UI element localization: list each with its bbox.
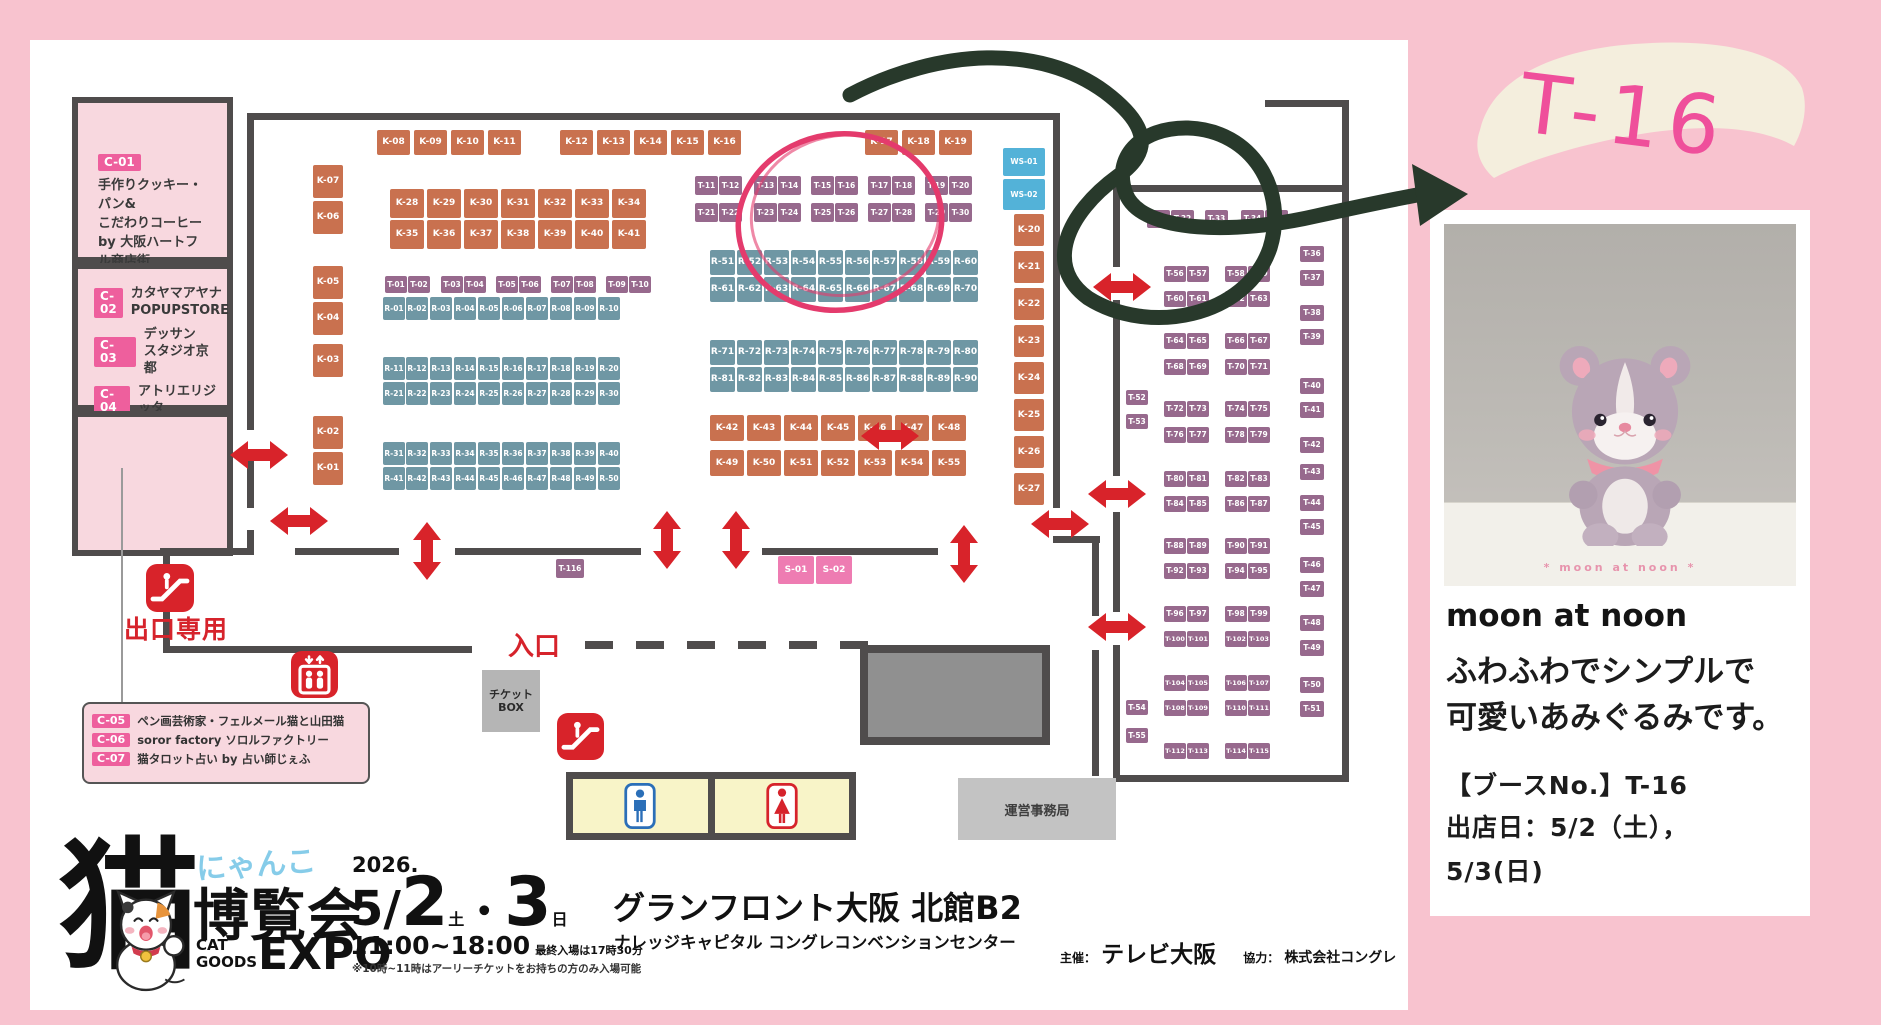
booth-t-28: T-28 [892, 203, 915, 222]
organizer-name: テレビ大阪 [1101, 942, 1216, 968]
booth-t-108: T-108 [1164, 700, 1186, 716]
booth-t-92: T-92 [1164, 563, 1186, 579]
booth-t-25: T-25 [811, 203, 834, 222]
booth-t-66: T-66 [1225, 333, 1247, 349]
booth-k-13: K-13 [597, 130, 630, 155]
room-c01-line1: 手作りクッキー・パン& [98, 177, 211, 215]
booth-r-80: R-80 [953, 340, 978, 365]
booth-t-35: T-35 [1265, 210, 1288, 228]
booth-k-29: K-29 [427, 189, 461, 218]
featured-booth-sidebar: T-16 [1408, 0, 1881, 1025]
booth-t-69: T-69 [1187, 359, 1209, 375]
wall-segment [160, 548, 250, 555]
booth-r-27: R-27 [526, 382, 548, 405]
booth-t-103: T-103 [1248, 631, 1270, 647]
booth-t-77: T-77 [1187, 427, 1209, 443]
booth-r-08: R-08 [550, 297, 572, 320]
booth-t-94: T-94 [1225, 563, 1247, 579]
wall-segment [1113, 300, 1120, 476]
booth-r-54: R-54 [791, 250, 816, 275]
date-day2-sub: 日 [552, 910, 568, 929]
booth-t-56: T-56 [1164, 266, 1186, 282]
booth-r-76: R-76 [845, 340, 870, 365]
booth-t-106: T-106 [1225, 675, 1247, 691]
booth-r-59: R-59 [926, 250, 951, 275]
booth-r-02: R-02 [406, 297, 428, 320]
booth-t-43: T-43 [1300, 464, 1324, 480]
room-c01-line2: こだわりコーヒー [98, 215, 211, 234]
booth-k-25: K-25 [1014, 399, 1044, 431]
booth-t-04: T-04 [464, 276, 486, 293]
elevator-icon [291, 651, 338, 698]
flow-arrow-horizontal [268, 504, 330, 538]
flow-arrow-vertical [650, 509, 684, 571]
booth-r-45: R-45 [478, 467, 500, 490]
booth-r-63: R-63 [764, 277, 789, 302]
booth-r-74: R-74 [791, 340, 816, 365]
wall-segment [1113, 512, 1120, 612]
wall-segment [455, 548, 641, 555]
booth-r-69: R-69 [926, 277, 951, 302]
legend-box: C-05 ペン画芸術家・フェルメール猫と山田猫 C-06 soror facto… [82, 702, 370, 784]
booth-k-14: K-14 [634, 130, 667, 155]
room-c02-c04: C-02 カタヤマアヤナ POPUPSTORE C-03 デッサン スタジオ京都… [72, 263, 233, 411]
booth-t-57: T-57 [1187, 266, 1209, 282]
event-footer: 猫 にゃんこ 博覧会 CAT GOODS EXPO 2026. 5/2 [30, 835, 1408, 1010]
booth-r-87: R-87 [872, 367, 897, 392]
legend-c06-text: soror factory ソロルファクトリー [137, 732, 329, 748]
booth-k-42: K-42 [710, 415, 744, 441]
booth-r-81: R-81 [710, 367, 735, 392]
venue-sub: ナレッジキャピタル コングレコンベンションセンター [614, 929, 1016, 953]
booth-k-32: K-32 [538, 189, 572, 218]
booth-r-83: R-83 [764, 367, 789, 392]
booth-r-43: R-43 [430, 467, 452, 490]
photo-caption: * moon at noon * [1444, 561, 1796, 574]
booth-r-09: R-09 [574, 297, 596, 320]
booth-r-64: R-64 [791, 277, 816, 302]
room-row-c03: C-03 デッサン スタジオ京都 [94, 327, 219, 378]
booth-t-116: T-116 [556, 559, 584, 578]
room-c03-line2: スタジオ京都 [144, 344, 219, 378]
booth-t-75: T-75 [1248, 401, 1270, 417]
booth-t-78: T-78 [1225, 427, 1247, 443]
booth-photo: * moon at noon * [1444, 224, 1796, 586]
booth-t-30: T-30 [949, 203, 972, 222]
booth-t-07: T-07 [551, 276, 573, 293]
booth-k-28: K-28 [390, 189, 424, 218]
booth-k-06: K-06 [313, 201, 343, 234]
room-c02-line1: カタヤマアヤナ [131, 286, 229, 303]
womens-toilet-icon [766, 783, 798, 829]
booth-ws-01: WS-01 [1003, 148, 1045, 176]
booth-r-35: R-35 [478, 442, 500, 465]
booth-t-39: T-39 [1300, 329, 1324, 345]
booth-t-99: T-99 [1248, 606, 1270, 622]
booth-r-49: R-49 [574, 467, 596, 490]
booth-t-45: T-45 [1300, 519, 1324, 535]
booth-title: moon at noon [1446, 598, 1687, 634]
wall-segment [1092, 536, 1099, 616]
booth-k-17: K-17 [865, 130, 898, 155]
booth-t-74: T-74 [1225, 401, 1247, 417]
booth-r-34: R-34 [454, 442, 476, 465]
ticket-box: チケット BOX [482, 670, 540, 732]
organizer-row: 主催： テレビ大阪 協力： 株式会社コングレ [1060, 935, 1396, 969]
booth-tag: T-16 [1462, 30, 1822, 200]
flow-arrow-horizontal [1029, 507, 1091, 541]
booth-t-31: T-31 [1147, 210, 1170, 228]
booth-t-37: T-37 [1300, 270, 1324, 286]
booth-t-01: T-01 [385, 276, 407, 293]
ticket-box-line1: チケット [489, 688, 533, 701]
booth-r-26: R-26 [502, 382, 524, 405]
booth-badge-c06: C-06 [92, 733, 130, 747]
booth-r-62: R-62 [737, 277, 762, 302]
flyer-canvas: C-01 手作りクッキー・パン& こだわりコーヒー by 大阪ハートフル商店街 … [0, 0, 1881, 1025]
booth-t-32: T-32 [1171, 210, 1194, 228]
booth-r-25: R-25 [478, 382, 500, 405]
booth-t-40: T-40 [1300, 378, 1324, 394]
booth-k-51: K-51 [784, 450, 818, 476]
booth-r-48: R-48 [550, 467, 572, 490]
booth-t-112: T-112 [1164, 743, 1186, 759]
wall-segment [1113, 645, 1120, 775]
booth-r-11: R-11 [383, 357, 405, 380]
booth-r-75: R-75 [818, 340, 843, 365]
booth-t-64: T-64 [1164, 333, 1186, 349]
booth-t-59: T-59 [1248, 266, 1270, 282]
entrance-label: 入口 [508, 626, 560, 663]
booth-k-10: K-10 [451, 130, 484, 155]
booth-t-90: T-90 [1225, 538, 1247, 554]
booth-r-39: R-39 [574, 442, 596, 465]
booth-r-13: R-13 [430, 357, 452, 380]
room-c03-line1: デッサン [144, 327, 219, 344]
booth-badge-c07: C-07 [92, 752, 130, 766]
booth-t-08: T-08 [574, 276, 596, 293]
open-hours: 11:00~18:00 [350, 931, 530, 960]
booth-t-81: T-81 [1187, 471, 1209, 487]
room-empty [72, 411, 233, 556]
booth-t-80: T-80 [1164, 471, 1186, 487]
booth-t-34: T-34 [1241, 210, 1264, 228]
booth-t-86: T-86 [1225, 496, 1247, 512]
booth-t-54: T-54 [1126, 700, 1148, 715]
booth-s-02: S-02 [816, 556, 852, 584]
booth-r-70: R-70 [953, 277, 978, 302]
booth-r-15: R-15 [478, 357, 500, 380]
booth-r-21: R-21 [383, 382, 405, 405]
booth-r-50: R-50 [598, 467, 620, 490]
booth-r-32: R-32 [406, 442, 428, 465]
wall-segment [1265, 100, 1349, 107]
booth-r-22: R-22 [406, 382, 428, 405]
booth-t-76: T-76 [1164, 427, 1186, 443]
booth-t-36: T-36 [1300, 246, 1324, 262]
booth-r-30: R-30 [598, 382, 620, 405]
booth-t-70: T-70 [1225, 359, 1247, 375]
booth-k-55: K-55 [932, 450, 966, 476]
booth-r-58: R-58 [899, 250, 924, 275]
booth-r-04: R-04 [454, 297, 476, 320]
booth-t-55: T-55 [1126, 728, 1148, 743]
booth-r-41: R-41 [383, 467, 405, 490]
booth-k-37: K-37 [464, 220, 498, 249]
booth-badge-c01: C-01 [98, 154, 141, 171]
booth-k-01: K-01 [313, 452, 343, 485]
booth-r-89: R-89 [926, 367, 951, 392]
mens-toilet-icon [624, 783, 656, 829]
booth-k-34: K-34 [612, 189, 646, 218]
booth-t-42: T-42 [1300, 437, 1324, 453]
booth-t-52: T-52 [1126, 390, 1148, 405]
room-c01: C-01 手作りクッキー・パン& こだわりコーヒー by 大阪ハートフル商店街 [72, 97, 233, 263]
wall-segment [789, 641, 817, 649]
booth-description-line2: 可愛いあみぐるみです。 [1446, 692, 1783, 737]
ticket-box-line2: BOX [498, 701, 524, 714]
booth-t-67: T-67 [1248, 333, 1270, 349]
booth-k-35: K-35 [390, 220, 424, 249]
booth-t-26: T-26 [835, 203, 858, 222]
booth-t-68: T-68 [1164, 359, 1186, 375]
booth-k-27: K-27 [1014, 473, 1044, 505]
booth-t-41: T-41 [1300, 402, 1324, 418]
booth-k-41: K-41 [612, 220, 646, 249]
wall-segment [1113, 192, 1120, 267]
booth-t-111: T-111 [1248, 700, 1270, 716]
booth-r-79: R-79 [926, 340, 951, 365]
booth-k-07: K-07 [313, 165, 343, 198]
wall-segment [585, 641, 613, 649]
booth-k-49: K-49 [710, 450, 744, 476]
booth-r-10: R-10 [598, 297, 620, 320]
legend-c07-text: 猫タロット占い by 占い師じぇふ [137, 751, 310, 767]
booth-r-67: R-67 [872, 277, 897, 302]
booth-k-12: K-12 [560, 130, 593, 155]
booth-r-33: R-33 [430, 442, 452, 465]
date-day1-sub: 土 [448, 910, 464, 929]
wall-segment [738, 641, 766, 649]
booth-k-44: K-44 [784, 415, 818, 441]
booth-k-43: K-43 [747, 415, 781, 441]
booth-card: * moon at noon * moon at noon ふわふわでシンプルで… [1430, 210, 1810, 916]
booth-t-24: T-24 [778, 203, 801, 222]
flow-arrow-vertical [410, 520, 444, 582]
flow-arrow-horizontal [859, 419, 921, 453]
booth-k-45: K-45 [821, 415, 855, 441]
booth-t-38: T-38 [1300, 305, 1324, 321]
wall-segment [1342, 185, 1349, 782]
booth-t-11: T-11 [695, 176, 718, 195]
booth-k-50: K-50 [747, 450, 781, 476]
booth-t-19: T-19 [925, 176, 948, 195]
booth-r-14: R-14 [454, 357, 476, 380]
booth-k-23: K-23 [1014, 325, 1044, 357]
booth-t-110: T-110 [1225, 700, 1247, 716]
booth-t-17: T-17 [868, 176, 891, 195]
booth-r-68: R-68 [899, 277, 924, 302]
booth-k-38: K-38 [501, 220, 535, 249]
booth-r-38: R-38 [550, 442, 572, 465]
mens-toilet [573, 779, 708, 833]
booth-r-73: R-73 [764, 340, 789, 365]
booth-r-86: R-86 [845, 367, 870, 392]
toilet-divider [708, 779, 715, 833]
booth-k-36: K-36 [427, 220, 461, 249]
booth-s-01: S-01 [778, 556, 814, 584]
booth-r-55: R-55 [818, 250, 843, 275]
room-c01-text: 手作りクッキー・パン& こだわりコーヒー by 大阪ハートフル商店街 [98, 177, 211, 271]
booth-r-29: R-29 [574, 382, 596, 405]
cooperation-name: 株式会社コングレ [1284, 950, 1396, 966]
date-dot: ・ [464, 889, 504, 935]
booth-ws-02: WS-02 [1003, 179, 1045, 210]
booth-t-102: T-102 [1225, 631, 1247, 647]
booth-k-15: K-15 [671, 130, 704, 155]
booth-t-03: T-03 [441, 276, 463, 293]
legend-c05-text: ペン画芸術家・フェルメール猫と山田猫 [137, 713, 344, 729]
plush-cat-illustration [1530, 328, 1720, 546]
booth-t-105: T-105 [1187, 675, 1209, 691]
booth-r-85: R-85 [818, 367, 843, 392]
booth-t-48: T-48 [1300, 615, 1324, 631]
booth-t-72: T-72 [1164, 401, 1186, 417]
escalator-icon [557, 713, 604, 760]
stage-block [860, 645, 1050, 745]
booth-r-06: R-06 [502, 297, 524, 320]
booth-t-18: T-18 [892, 176, 915, 195]
booth-t-12: T-12 [719, 176, 742, 195]
booth-t-60: T-60 [1164, 291, 1186, 307]
booth-r-03: R-03 [430, 297, 452, 320]
booth-t-65: T-65 [1187, 333, 1209, 349]
legend-row-c06: C-06 soror factory ソロルファクトリー [92, 732, 360, 748]
booth-k-53: K-53 [858, 450, 892, 476]
booth-k-18: K-18 [902, 130, 935, 155]
booth-t-73: T-73 [1187, 401, 1209, 417]
booth-r-37: R-37 [526, 442, 548, 465]
booth-r-53: R-53 [764, 250, 789, 275]
booth-t-06: T-06 [519, 276, 541, 293]
booth-t-93: T-93 [1187, 563, 1209, 579]
booth-t-15: T-15 [811, 176, 834, 195]
date-time-row: 11:00~18:00 最終入場は17時30分 [350, 931, 643, 960]
booth-k-54: K-54 [895, 450, 929, 476]
booth-r-52: R-52 [737, 250, 762, 275]
cooperation-label: 協力： [1243, 951, 1279, 965]
booth-r-19: R-19 [574, 357, 596, 380]
booth-date-line1: 出店日：5/2（土）， [1446, 808, 1688, 844]
wall-segment [295, 548, 399, 555]
booth-k-24: K-24 [1014, 362, 1044, 394]
booth-r-18: R-18 [550, 357, 572, 380]
booth-r-01: R-01 [383, 297, 405, 320]
booth-r-71: R-71 [710, 340, 735, 365]
booth-badge-c03: C-03 [94, 337, 136, 367]
booth-t-14: T-14 [778, 176, 801, 195]
booth-t-88: T-88 [1164, 538, 1186, 554]
booth-t-49: T-49 [1300, 640, 1324, 656]
legend-connector-line [121, 468, 123, 704]
booth-r-24: R-24 [454, 382, 476, 405]
booth-r-40: R-40 [598, 442, 620, 465]
booth-badge-c05: C-05 [92, 714, 130, 728]
booth-r-12: R-12 [406, 357, 428, 380]
booth-k-09: K-09 [414, 130, 447, 155]
booth-r-36: R-36 [502, 442, 524, 465]
room-c02-line2: POPUPSTORE [131, 303, 229, 320]
booth-k-05: K-05 [313, 266, 343, 299]
booth-number: 【ブースNo.】T-16 [1446, 766, 1688, 802]
booth-t-85: T-85 [1187, 496, 1209, 512]
booth-r-20: R-20 [598, 357, 620, 380]
booth-r-90: R-90 [953, 367, 978, 392]
booth-r-78: R-78 [899, 340, 924, 365]
booth-r-42: R-42 [406, 467, 428, 490]
booth-t-107: T-107 [1248, 675, 1270, 691]
booth-k-40: K-40 [575, 220, 609, 249]
wall-segment [247, 113, 1060, 120]
booth-r-66: R-66 [845, 277, 870, 302]
flow-arrow-horizontal [228, 438, 290, 472]
booth-k-20: K-20 [1014, 214, 1044, 246]
flow-arrow-vertical [719, 509, 753, 571]
booth-t-98: T-98 [1225, 606, 1247, 622]
escalator-icon [146, 564, 194, 612]
booth-t-79: T-79 [1248, 427, 1270, 443]
booth-r-05: R-05 [478, 297, 500, 320]
booth-k-48: K-48 [932, 415, 966, 441]
wall-segment [1342, 100, 1349, 192]
womens-toilet [715, 779, 850, 833]
booth-r-60: R-60 [953, 250, 978, 275]
booth-t-13: T-13 [754, 176, 777, 195]
wall-segment [1113, 775, 1349, 782]
booth-t-95: T-95 [1248, 563, 1270, 579]
booth-t-05: T-05 [496, 276, 518, 293]
booth-t-91: T-91 [1248, 538, 1270, 554]
venue-name: グランフロント大阪 北館B2 [613, 883, 1022, 929]
brand-cat-goods: CAT GOODS [196, 937, 257, 970]
room-row-c02: C-02 カタヤマアヤナ POPUPSTORE [94, 286, 219, 320]
brand-cat: CAT [196, 937, 257, 954]
wall-segment [636, 641, 664, 649]
booth-t-100: T-100 [1164, 631, 1186, 647]
booth-r-88: R-88 [899, 367, 924, 392]
legend-row-c07: C-07 猫タロット占い by 占い師じぇふ [92, 751, 360, 767]
booth-k-11: K-11 [488, 130, 521, 155]
booth-t-63: T-63 [1248, 291, 1270, 307]
booth-t-101: T-101 [1187, 631, 1209, 647]
wall-segment [1053, 113, 1060, 508]
booth-r-72: R-72 [737, 340, 762, 365]
booth-t-16: T-16 [835, 176, 858, 195]
booth-r-84: R-84 [791, 367, 816, 392]
booth-k-04: K-04 [313, 302, 343, 335]
flow-arrow-vertical [947, 523, 981, 585]
wall-segment [762, 548, 938, 555]
booth-r-23: R-23 [430, 382, 452, 405]
booth-t-50: T-50 [1300, 677, 1324, 693]
wall-segment [1113, 185, 1349, 192]
booth-r-82: R-82 [737, 367, 762, 392]
booth-t-87: T-87 [1248, 496, 1270, 512]
booth-t-97: T-97 [1187, 606, 1209, 622]
booth-t-115: T-115 [1248, 743, 1270, 759]
booth-k-16: K-16 [708, 130, 741, 155]
booth-k-02: K-02 [313, 416, 343, 449]
